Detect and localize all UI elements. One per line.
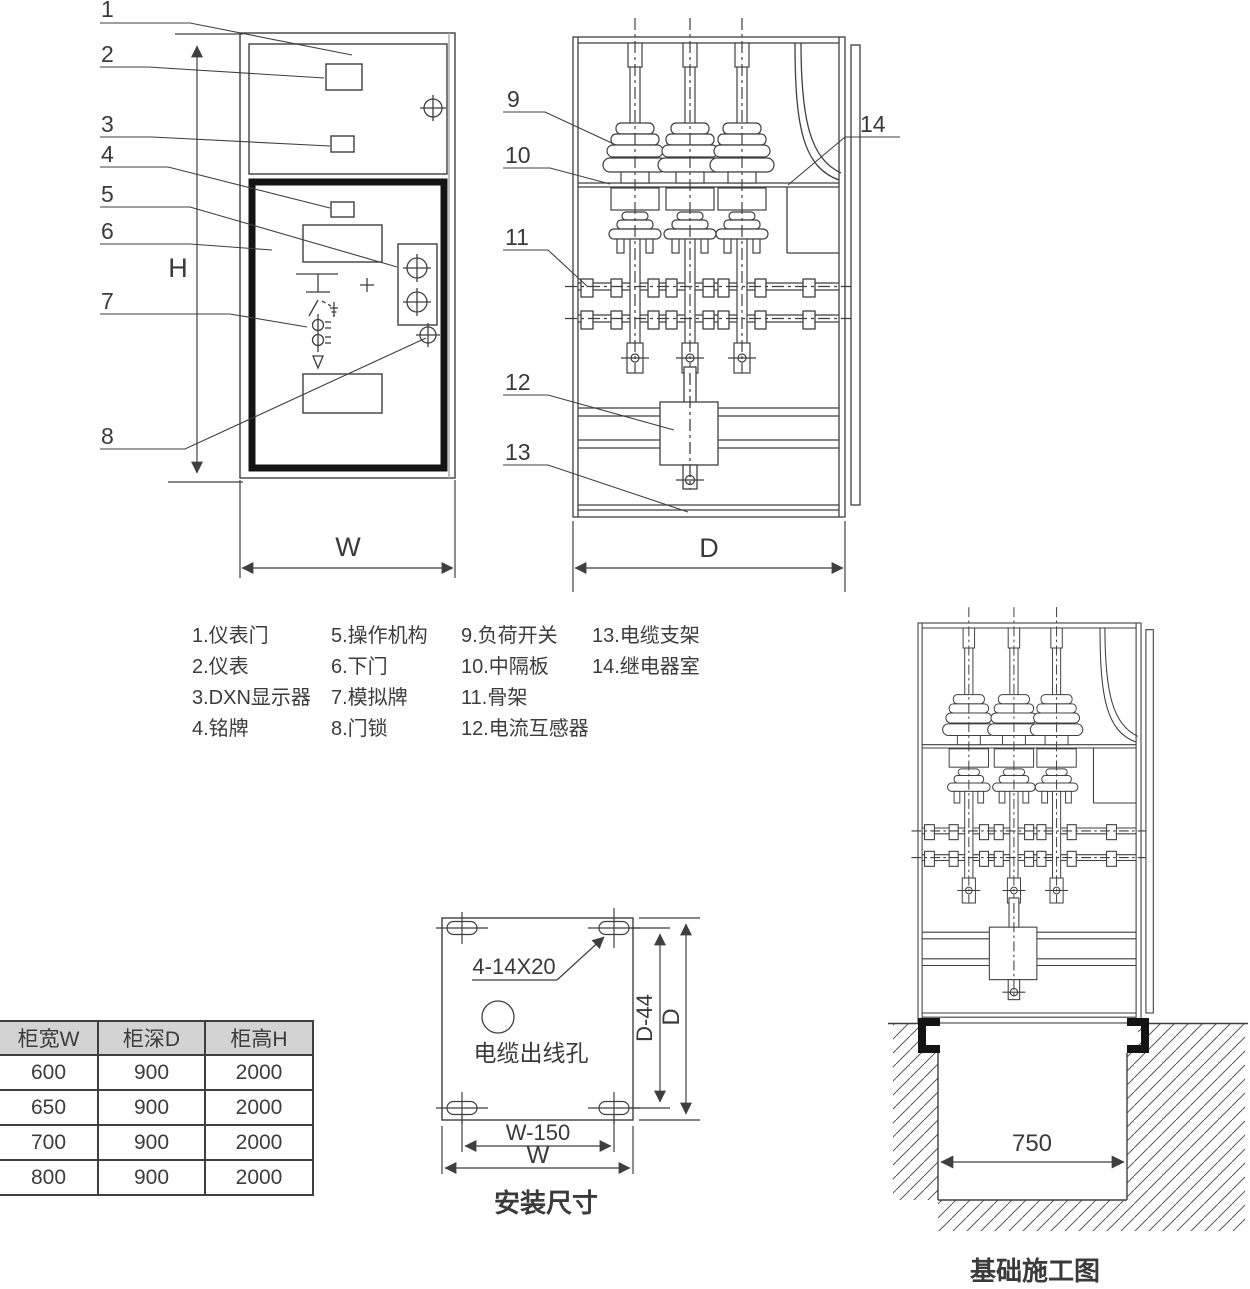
legend-item: 7.模拟牌	[331, 683, 428, 714]
legend-item: 2.仪表	[192, 652, 311, 683]
side-view: D 9 10 11 12 13 14	[503, 18, 900, 592]
channel-bracket-left	[918, 1018, 940, 1053]
legend-column-3: 9.负荷开关 10.中隔板 11.骨架 12.电流互感器	[461, 621, 589, 745]
legend-item: 10.中隔板	[461, 652, 589, 683]
callout-4: 4	[101, 141, 114, 167]
pit-width-label: 750	[1012, 1130, 1052, 1157]
cell: 900	[98, 1055, 205, 1090]
dim-width-label: W	[335, 532, 361, 562]
col-header-width: 柜宽W	[0, 1021, 98, 1055]
legend-column-1: 1.仪表门 2.仪表 3.DXN显示器 4.铭牌	[192, 621, 311, 745]
cell: 2000	[205, 1090, 313, 1125]
width-dimension	[240, 480, 455, 578]
legend-item: 13.电缆支架	[592, 621, 700, 652]
callout-2: 2	[101, 41, 114, 67]
dim-depth-label: D	[658, 1008, 685, 1025]
cell: 650	[0, 1090, 98, 1125]
col-header-depth: 柜深D	[98, 1021, 205, 1055]
callout-3: 3	[101, 111, 114, 137]
legend-item: 8.门锁	[331, 714, 428, 745]
callout-1: 1	[101, 0, 114, 22]
col-header-height: 柜高H	[205, 1021, 313, 1055]
switchgear-drawing-page: H W 1 2 3 4 5 6 7 8	[0, 0, 1250, 1289]
callout-8: 8	[101, 423, 114, 449]
cell: 2000	[205, 1160, 313, 1195]
cable-hole-label: 电缆出线孔	[474, 1040, 589, 1066]
callout-7: 7	[101, 288, 114, 314]
legend-item: 14.继电器室	[592, 652, 700, 683]
callout-5: 5	[101, 181, 114, 207]
cell: 2000	[205, 1125, 313, 1160]
legend-item: 9.负荷开关	[461, 621, 589, 652]
cell: 700	[0, 1125, 98, 1160]
cabinet-size-table: 柜宽W 柜深D 柜高H 600 900 2000 650 900 2000 70…	[0, 1020, 314, 1196]
callout-13: 13	[505, 439, 531, 465]
legend-item: 11.骨架	[461, 683, 589, 714]
legend-item: 3.DXN显示器	[192, 683, 311, 714]
cell: 900	[98, 1090, 205, 1125]
cell: 900	[98, 1125, 205, 1160]
legend-item: 1.仪表门	[192, 621, 311, 652]
dim-height-label: H	[168, 253, 188, 283]
dim-depth-label: D	[699, 533, 719, 563]
callout-6: 6	[101, 218, 114, 244]
legend-item: 4.铭牌	[192, 714, 311, 745]
dim-width-label: W	[527, 1142, 550, 1169]
dim-inner-depth-label: D-44	[632, 994, 657, 1042]
cell: 800	[0, 1160, 98, 1195]
cell: 2000	[205, 1055, 313, 1090]
cell: 600	[0, 1055, 98, 1090]
front-view: H W 1 2 3 4 5 6 7 8	[100, 0, 455, 578]
table-row: 600 900 2000	[0, 1055, 313, 1090]
install-diagram: 4-14X20 电缆出线孔 D-44 D W-150 W 安装尺寸	[436, 908, 700, 1218]
table-row: 800 900 2000	[0, 1160, 313, 1195]
install-diagram-title: 安装尺寸	[494, 1188, 598, 1218]
callout-11: 11	[505, 224, 529, 250]
cell: 900	[98, 1160, 205, 1195]
bolt-label: 4-14X20	[472, 954, 555, 979]
cabinet-section	[565, 18, 860, 517]
foundation-diagram-title: 基础施工图	[970, 1256, 1100, 1286]
callout-10: 10	[505, 142, 531, 168]
legend-item: 6.下门	[331, 652, 428, 683]
cabinet-section-small	[911, 607, 1153, 1023]
callout-12: 12	[505, 369, 531, 395]
legend-column-2: 5.操作机构 6.下门 7.模拟牌 8.门锁	[331, 621, 428, 745]
legend-item: 5.操作机构	[331, 621, 428, 652]
table-row: 700 900 2000	[0, 1125, 313, 1160]
table-header-row: 柜宽W 柜深D 柜高H	[0, 1021, 313, 1055]
legend-column-4: 13.电缆支架 14.继电器室	[592, 621, 700, 683]
callout-14: 14	[860, 111, 886, 137]
legend-item: 12.电流互感器	[461, 714, 589, 745]
table-row: 650 900 2000	[0, 1090, 313, 1125]
callout-9: 9	[507, 86, 520, 112]
mounting-plate	[442, 918, 633, 1120]
foundation-diagram: 750 基础施工图	[888, 607, 1248, 1286]
